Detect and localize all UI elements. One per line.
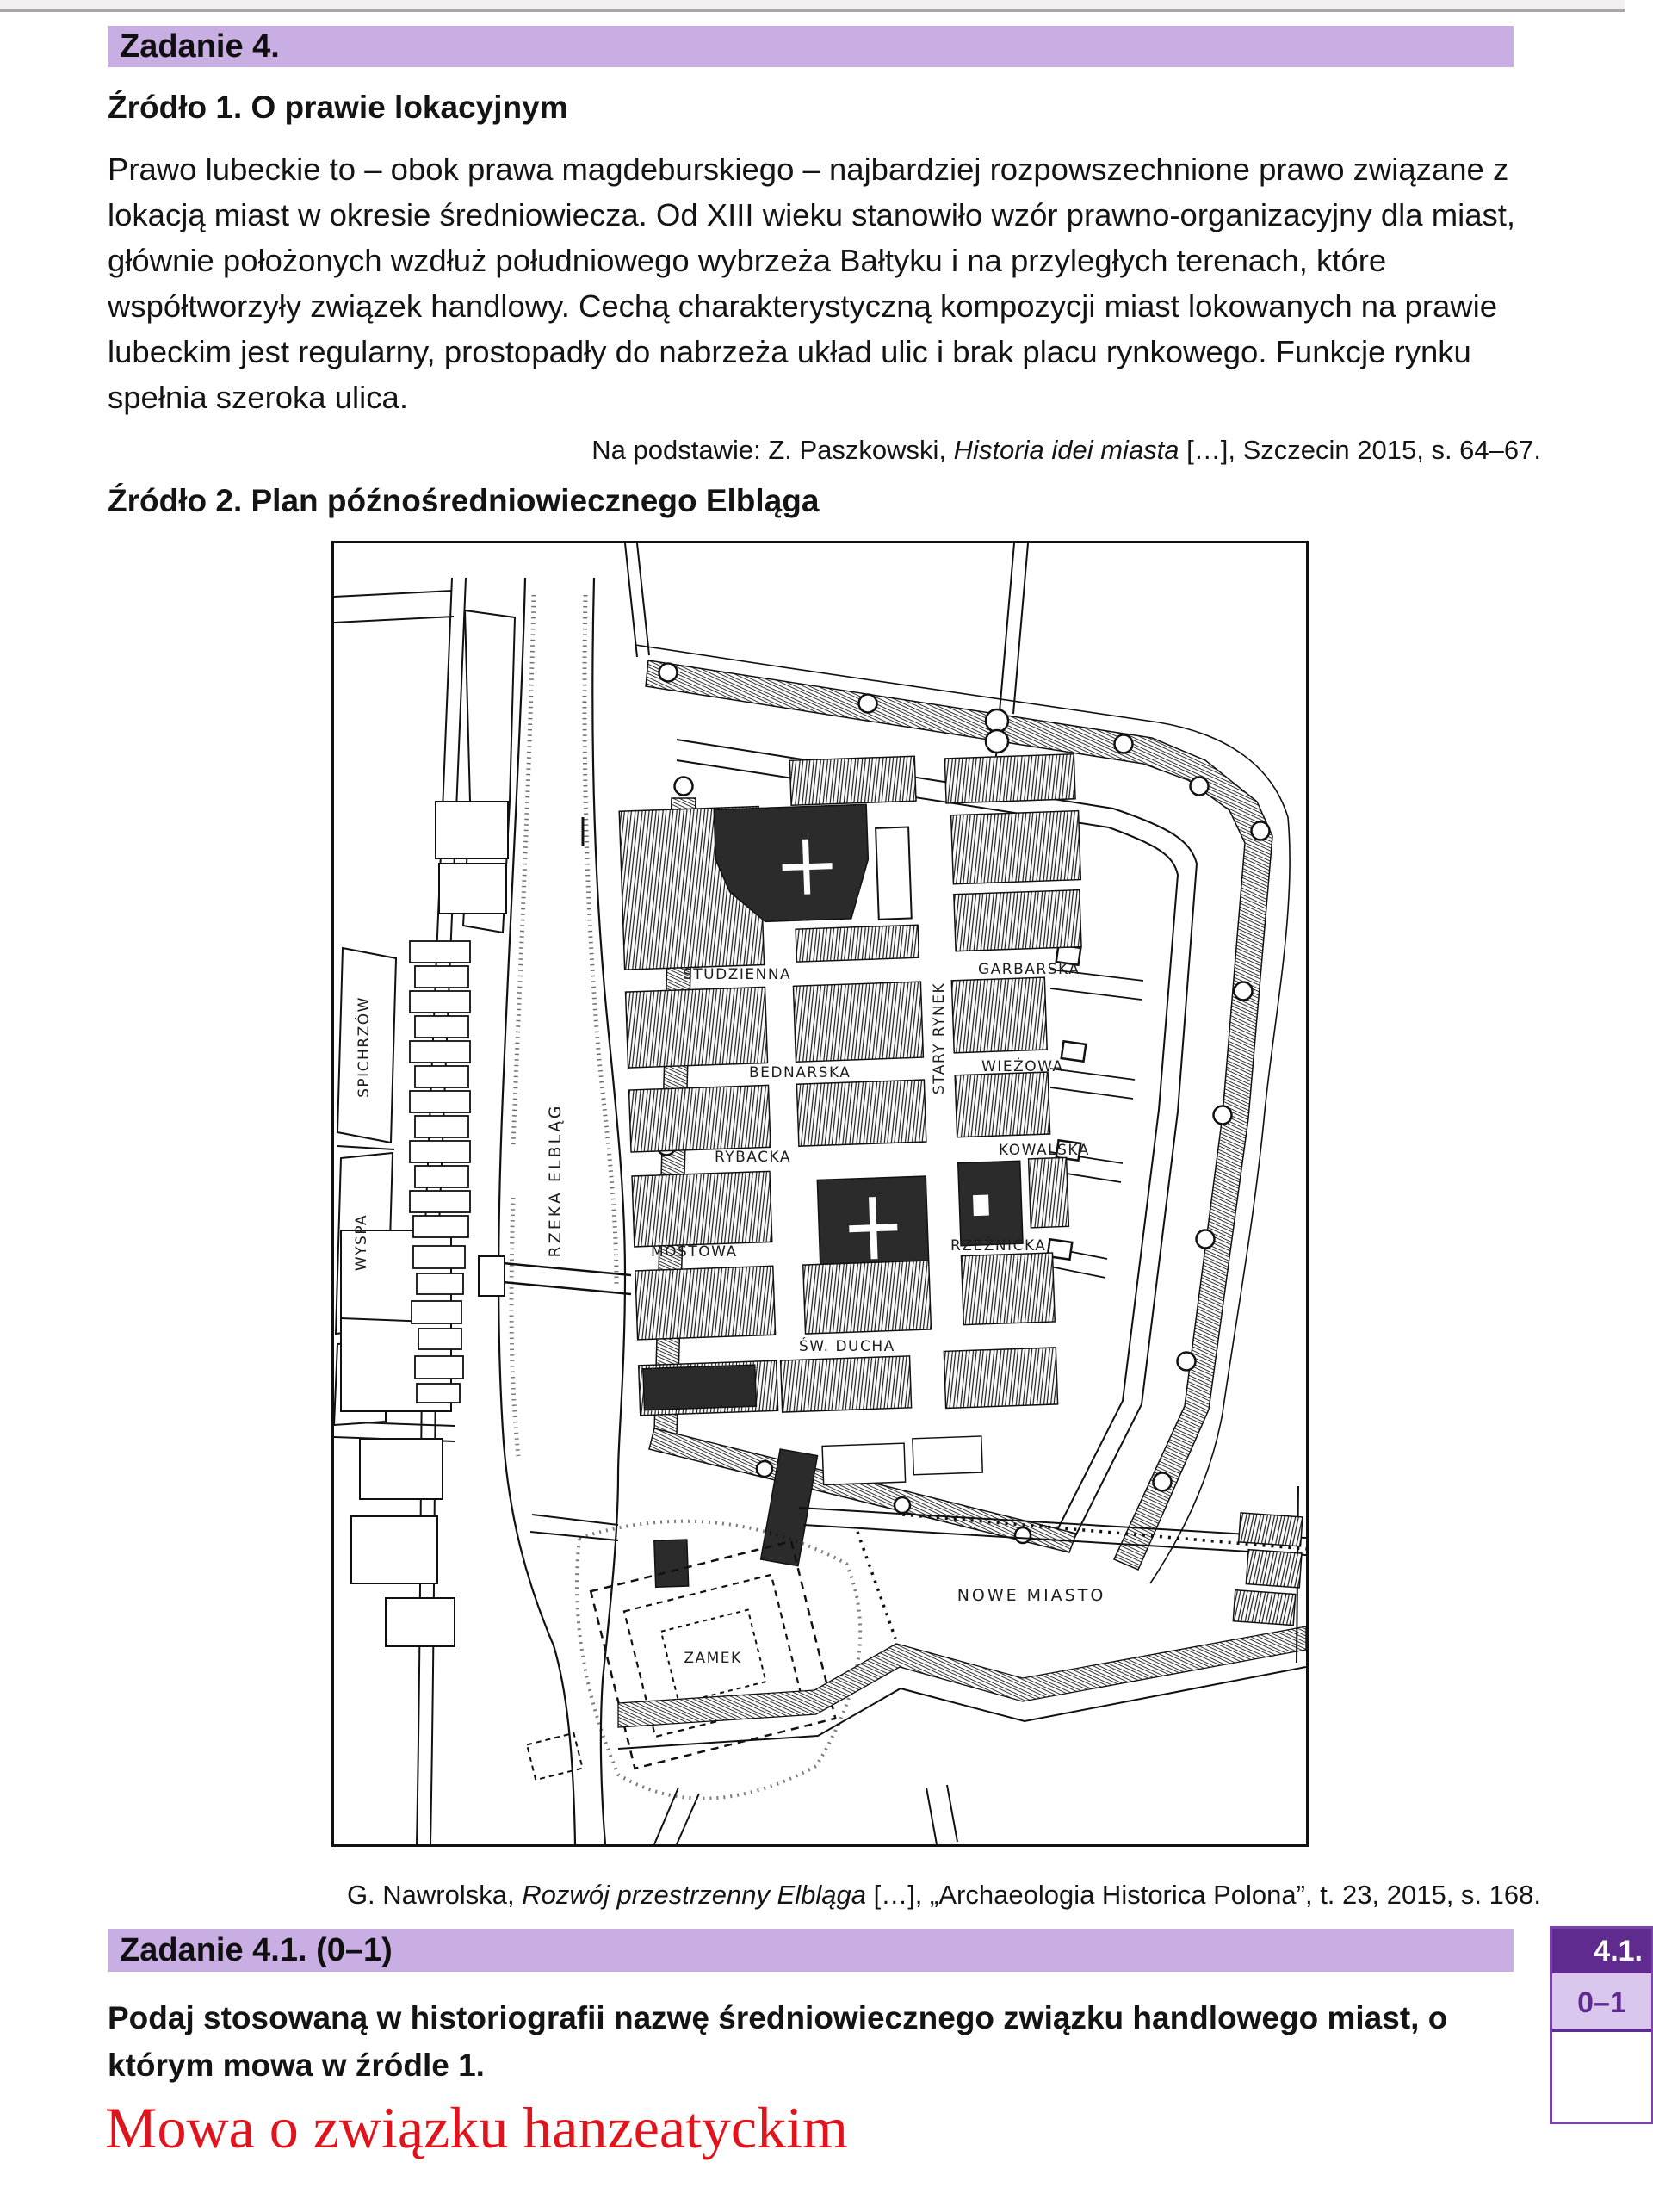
citation1-suffix: […], Szczecin 2015, s. 64–67.	[1179, 435, 1541, 465]
caption2-prefix: G. Nawrolska,	[347, 1880, 522, 1910]
nowe-miasto-blocks	[1233, 1513, 1304, 1626]
caption2-title: Rozwój przestrzenny Elbląga	[522, 1880, 866, 1910]
score-entry-box	[1552, 2032, 1651, 2122]
sw-ducha-label: ŚW. DUCHA	[799, 1336, 895, 1355]
task41-title: Zadanie 4.1. (0–1)	[120, 1932, 393, 1968]
kowalska-label: KOWALSKA	[999, 1142, 1090, 1159]
source2-heading: Źródło 2. Plan późnośredniowiecznego Elb…	[108, 483, 819, 519]
score-task-number: 4.1.	[1552, 1929, 1651, 1973]
score-sidebar: 4.1. 0–1	[1550, 1926, 1653, 2124]
source1-citation: Na podstawie: Z. Paszkowski, Historia id…	[108, 435, 1541, 466]
source1-body: Prawo lubeckie to – obok prawa magdeburs…	[108, 146, 1532, 420]
elblag-map-svg: RZEKA ELBLĄG SPICHRZÓW WYSPA	[334, 543, 1306, 1844]
task4-header-bar: Zadanie 4.	[108, 26, 1514, 67]
granaries	[410, 941, 470, 1403]
holy-spirit-building	[643, 1365, 757, 1410]
rybacka-label: RYBACKA	[715, 1149, 791, 1166]
spichrzow-label: SPICHRZÓW	[354, 996, 373, 1098]
bednarska-label: BEDNARSKA	[749, 1064, 851, 1081]
elblag-map-figure: RZEKA ELBLĄG SPICHRZÓW WYSPA	[331, 541, 1309, 1847]
source2-caption: G. Nawrolska, Rozwój przestrzenny Elbląg…	[108, 1880, 1541, 1911]
task41-answer: Mowa o związku hanzeatyckim	[105, 2094, 848, 2162]
river-label: RZEKA ELBLĄG	[546, 1104, 565, 1258]
bridge	[479, 1256, 631, 1296]
garbarska-label: GARBARSKA	[978, 961, 1080, 978]
caption2-suffix: […], „Archaeologia Historica Polona”, t.…	[866, 1880, 1541, 1910]
mostowa-label: MOSTOWA	[651, 1243, 738, 1261]
citation1-title: Historia idei miasta	[954, 435, 1179, 465]
citation1-prefix: Na podstawie: Z. Paszkowski,	[591, 435, 953, 465]
browser-edge-bar	[0, 0, 1625, 12]
source1-heading: Źródło 1. O prawie lokacyjnym	[108, 90, 568, 126]
church-east	[958, 1161, 1023, 1245]
task41-question: Podaj stosowaną w historiografii nazwę ś…	[108, 1994, 1451, 2089]
studzienna-label: STUDZIENNA	[683, 966, 791, 983]
rzeznicka-label: RZEŹNICKA	[950, 1236, 1046, 1255]
task4-title: Zadanie 4.	[120, 28, 280, 65]
wiezowa-label: WIEŻOWA	[981, 1057, 1064, 1075]
wyspa-label: WYSPA	[353, 1214, 370, 1271]
south-ramparts	[530, 1486, 1306, 1844]
score-points-range: 0–1	[1552, 1973, 1651, 2032]
north-gate	[986, 709, 1008, 732]
stary-rynek-label: STARY RYNEK	[931, 982, 948, 1094]
zamek-label: ZAMEK	[684, 1650, 741, 1667]
city-blocks	[617, 751, 1105, 1588]
task41-header-bar: Zadanie 4.1. (0–1)	[108, 1929, 1514, 1972]
nowe-miasto-label: NOWE MIASTO	[957, 1586, 1106, 1605]
